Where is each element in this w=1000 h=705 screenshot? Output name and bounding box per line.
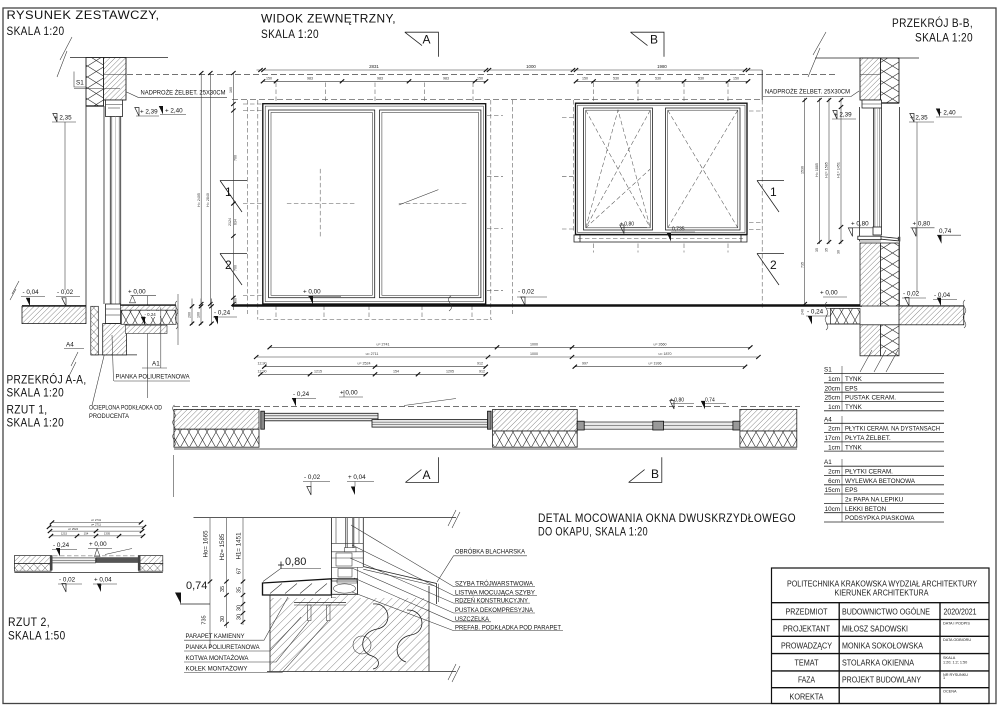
svg-text:1000: 1000 <box>530 342 538 346</box>
svg-text:PRODUCENTA: PRODUCENTA <box>89 413 130 420</box>
svg-text:+ 0,00: + 0,00 <box>340 390 358 397</box>
svg-text:35: 35 <box>237 587 243 593</box>
svg-text:6cm: 6cm <box>828 478 840 485</box>
svg-text:B: B <box>650 33 658 47</box>
svg-text:0,74: 0,74 <box>939 228 952 235</box>
svg-text:SKALA 1:50: SKALA 1:50 <box>8 631 66 643</box>
svg-text:WIDOK ZEWNĘTRZNY,: WIDOK ZEWNĘTRZNY, <box>261 14 396 26</box>
svg-text:2020/2021: 2020/2021 <box>944 608 977 617</box>
svg-text:POLITECHNIKA KRAKOWSKA WYDZIAŁ: POLITECHNIKA KRAKOWSKA WYDZIAŁ ARCHITEKT… <box>787 580 978 589</box>
svg-text:997: 997 <box>582 362 588 366</box>
svg-text:NADPROŻE ŻELBET. 25X30CM: NADPROŻE ŻELBET. 25X30CM <box>141 88 226 97</box>
svg-text:+ 0,80: + 0,80 <box>913 221 931 228</box>
svg-text:PŁYTA ŻELBET.: PŁYTA ŻELBET. <box>845 433 891 442</box>
svg-text:15cm: 15cm <box>825 487 840 494</box>
svg-text:2: 2 <box>225 258 232 272</box>
svg-text:H= 2405: H= 2405 <box>197 193 201 207</box>
svg-text:100: 100 <box>197 312 201 318</box>
svg-text:+ 2,40: + 2,40 <box>938 110 956 117</box>
svg-text:RYSUNEK ZESTAWCZY,: RYSUNEK ZESTAWCZY, <box>7 10 160 22</box>
svg-text:10cm: 10cm <box>825 506 840 513</box>
svg-text:Ho= 1665: Ho= 1665 <box>203 530 210 558</box>
svg-text:A1: A1 <box>152 361 160 368</box>
svg-text:30: 30 <box>237 614 243 620</box>
svg-text:+ 2,40: + 2,40 <box>165 108 183 115</box>
svg-text:150: 150 <box>266 77 272 81</box>
svg-text:2831: 2831 <box>369 64 379 69</box>
svg-text:H= 2840: H= 2840 <box>206 193 210 207</box>
svg-text:u= 2524: u= 2524 <box>68 527 79 531</box>
svg-text:EPS: EPS <box>845 487 858 494</box>
svg-text:+ 0,04: + 0,04 <box>348 474 366 481</box>
svg-text:SKALA 1:20: SKALA 1:20 <box>915 33 973 45</box>
svg-text:35: 35 <box>220 586 226 592</box>
svg-text:- 0,02: - 0,02 <box>304 474 321 481</box>
svg-text:1980: 1980 <box>657 64 667 69</box>
svg-text:1000: 1000 <box>526 64 536 69</box>
svg-text:PŁYTKI CERAM. NA DYSTANSACH: PŁYTKI CERAM. NA DYSTANSACH <box>845 426 940 433</box>
svg-text:1:20; 1:2; 1:50: 1:20; 1:2; 1:50 <box>943 661 967 665</box>
svg-text:PŁYTKI CERAM.: PŁYTKI CERAM. <box>845 469 893 476</box>
svg-text:530: 530 <box>613 77 619 81</box>
svg-text:+ 0,80: + 0,80 <box>851 221 869 228</box>
svg-text:- 0,04: - 0,04 <box>934 292 951 299</box>
svg-text:1305: 1305 <box>104 532 111 536</box>
svg-text:912: 912 <box>477 362 483 366</box>
svg-text:MIŁOSZ SADOWSKI: MIŁOSZ SADOWSKI <box>842 625 908 634</box>
svg-text:1: 1 <box>943 676 945 680</box>
svg-text:A4: A4 <box>824 416 832 423</box>
svg-text:30: 30 <box>837 250 841 254</box>
svg-text:DETAL MOCOWANIA OKNA DWUSKRZYD: DETAL MOCOWANIA OKNA DWUSKRZYDŁOWEGO <box>538 513 796 525</box>
svg-text:- 0,02: - 0,02 <box>518 289 535 296</box>
svg-text:2cm: 2cm <box>828 469 840 476</box>
svg-text:- 0,24: - 0,24 <box>293 391 310 398</box>
svg-text:+ 2,39: + 2,39 <box>140 109 158 116</box>
svg-text:2124: 2124 <box>228 218 232 226</box>
svg-text:67: 67 <box>237 568 243 574</box>
svg-text:35: 35 <box>815 248 819 252</box>
svg-text:1cm: 1cm <box>828 376 840 383</box>
svg-text:+ 0,80: + 0,80 <box>620 222 634 228</box>
svg-text:200: 200 <box>188 312 192 318</box>
svg-text:0,74: 0,74 <box>186 580 207 592</box>
svg-text:SKALA 1:20: SKALA 1:20 <box>7 26 65 38</box>
svg-text:2: 2 <box>770 258 777 272</box>
svg-text:u= 2711: u= 2711 <box>91 523 101 527</box>
svg-text:30: 30 <box>220 616 226 622</box>
svg-text:PIANKA POLIURETANOWA: PIANKA POLIURETANOWA <box>116 374 191 381</box>
svg-text:u= 2660: u= 2660 <box>653 342 666 346</box>
svg-text:1536: 1536 <box>801 166 805 174</box>
svg-text:PIANKA POLIURETANOWA: PIANKA POLIURETANOWA <box>186 644 261 651</box>
svg-text:154: 154 <box>84 532 89 536</box>
svg-text:SKALA 1:20: SKALA 1:20 <box>261 29 319 41</box>
svg-text:A: A <box>423 33 431 47</box>
svg-text:KIERUNEK ARCHITEKTURA: KIERUNEK ARCHITEKTURA <box>835 589 930 598</box>
svg-text:A4: A4 <box>66 342 74 349</box>
svg-text:KOTWA MONTAŻOWA: KOTWA MONTAŻOWA <box>186 653 250 662</box>
svg-text:PROJEKT BUDOWLANY: PROJEKT BUDOWLANY <box>842 675 921 684</box>
svg-text:+ 0,00: + 0,00 <box>303 289 321 296</box>
svg-text:NR RYSUNKU: NR RYSUNKU <box>943 673 968 677</box>
svg-text:1cm: 1cm <box>828 404 840 411</box>
svg-text:OCENA: OCENA <box>943 690 957 694</box>
svg-text:983: 983 <box>377 77 383 81</box>
svg-text:+ 0,00: + 0,00 <box>89 541 107 548</box>
svg-text:2x PAPA NA LEPIKU: 2x PAPA NA LEPIKU <box>845 497 904 504</box>
svg-text:SZYBA TRÓJWARSTWOWA: SZYBA TRÓJWARSTWOWA <box>455 578 534 587</box>
svg-text:LEKKI BETON: LEKKI BETON <box>845 506 887 513</box>
svg-text:+ 2,35: + 2,35 <box>910 115 928 122</box>
svg-text:12,90: 12,90 <box>258 369 267 373</box>
svg-text:u= 2524: u= 2524 <box>357 362 370 366</box>
svg-text:912: 912 <box>479 369 485 373</box>
svg-text:TYNK: TYNK <box>845 404 863 411</box>
svg-text:983: 983 <box>443 77 449 81</box>
svg-text:SKALA 1:20: SKALA 1:20 <box>7 418 65 430</box>
svg-text:EPS: EPS <box>845 385 858 392</box>
svg-text:700: 700 <box>234 155 238 161</box>
svg-text:+ 0,04: + 0,04 <box>94 577 112 584</box>
svg-text:B: B <box>651 467 659 481</box>
svg-text:A: A <box>423 468 431 482</box>
svg-text:WYLEWKA BETONOWA: WYLEWKA BETONOWA <box>845 478 916 485</box>
svg-text:35: 35 <box>825 248 829 252</box>
svg-text:FAZA: FAZA <box>798 675 816 684</box>
svg-text:- 0,24: - 0,24 <box>53 542 70 549</box>
svg-text:983: 983 <box>307 77 313 81</box>
svg-text:- 0,04: - 0,04 <box>23 289 40 296</box>
svg-text:634: 634 <box>234 219 238 225</box>
svg-text:TYNK: TYNK <box>845 376 863 383</box>
svg-text:SKALA 1:20: SKALA 1:20 <box>7 388 65 400</box>
svg-text:OCIEPLONA PODKŁADKA OD: OCIEPLONA PODKŁADKA OD <box>89 405 162 412</box>
svg-text:1215: 1215 <box>314 369 322 373</box>
svg-text:17cm: 17cm <box>825 435 840 442</box>
svg-text:SKALA: SKALA <box>943 656 956 660</box>
svg-text:PARAPET KAMIENNY: PARAPET KAMIENNY <box>186 633 246 640</box>
svg-text:Hz= 1585: Hz= 1585 <box>825 162 829 177</box>
svg-text:DATA I PODPIS: DATA I PODPIS <box>943 621 970 625</box>
svg-text:S1: S1 <box>76 80 84 87</box>
svg-text:MONIKA SOKOŁOWSKA: MONIKA SOKOŁOWSKA <box>842 641 923 650</box>
svg-text:PROWADZĄCY: PROWADZĄCY <box>781 641 833 650</box>
svg-text:1: 1 <box>225 185 232 199</box>
svg-text:DO OKAPU, SKALA 1:20: DO OKAPU, SKALA 1:20 <box>538 527 648 539</box>
svg-text:- 0,02: - 0,02 <box>59 577 76 584</box>
svg-text:S1: S1 <box>824 367 832 374</box>
svg-text:- 0,24: - 0,24 <box>145 312 157 317</box>
svg-text:530: 530 <box>698 77 704 81</box>
svg-text:12,90: 12,90 <box>258 362 267 366</box>
svg-text:1215: 1215 <box>61 532 68 536</box>
svg-text:u= 2741: u= 2741 <box>376 342 389 346</box>
svg-text:700: 700 <box>234 265 238 271</box>
svg-text:u= 2741: u= 2741 <box>91 518 102 522</box>
svg-text:1cm: 1cm <box>828 444 840 451</box>
svg-text:H1= 1451: H1= 1451 <box>236 532 243 560</box>
svg-text:160: 160 <box>234 298 238 304</box>
svg-text:- 0,24: - 0,24 <box>214 310 231 317</box>
svg-text:154: 154 <box>393 369 399 373</box>
svg-text:+ 0,00: + 0,00 <box>128 288 146 295</box>
svg-text:2cm: 2cm <box>828 426 840 433</box>
svg-text:1: 1 <box>770 185 777 199</box>
svg-text:25cm: 25cm <box>825 395 840 402</box>
svg-text:KOŁEK MONTAŻOWY: KOŁEK MONTAŻOWY <box>186 663 249 672</box>
svg-text:TYNK: TYNK <box>845 444 863 451</box>
svg-text:A1: A1 <box>824 459 832 466</box>
svg-text:1000: 1000 <box>530 352 538 356</box>
svg-text:H= 1885: H= 1885 <box>815 163 819 177</box>
svg-text:PROJEKTANT: PROJEKTANT <box>783 625 830 634</box>
svg-text:240: 240 <box>801 309 805 315</box>
svg-text:150: 150 <box>582 77 588 81</box>
svg-text:NADPROŻE ŻELBET. 25X30CM: NADPROŻE ŻELBET. 25X30CM <box>765 87 850 96</box>
svg-text:RZUT 2,: RZUT 2, <box>8 617 50 629</box>
svg-text:- 0,02: - 0,02 <box>903 291 920 298</box>
svg-text:30: 30 <box>237 605 243 611</box>
svg-text:+ 0,00: + 0,00 <box>820 290 838 297</box>
svg-text:735: 735 <box>202 615 208 624</box>
svg-text:150: 150 <box>477 77 483 81</box>
svg-text:- 0,02: - 0,02 <box>57 289 74 296</box>
svg-text:KOREKTA: KOREKTA <box>790 692 825 701</box>
svg-text:PODSYPKA PIASKOWA: PODSYPKA PIASKOWA <box>845 515 915 522</box>
svg-text:160: 160 <box>229 87 233 93</box>
svg-text:0,74: 0,74 <box>705 398 715 404</box>
svg-text:- 0,24: - 0,24 <box>807 309 824 316</box>
svg-text:u= 1870: u= 1870 <box>658 352 671 356</box>
svg-text:PRZEKRÓJ B-B,: PRZEKRÓJ B-B, <box>892 17 973 30</box>
svg-text:u= 1936: u= 1936 <box>648 362 661 366</box>
svg-text:PRZEKRÓJ A-A,: PRZEKRÓJ A-A, <box>7 374 87 387</box>
svg-text:RZUT 1,: RZUT 1, <box>7 405 48 417</box>
svg-text:u= 2711: u= 2711 <box>366 352 379 356</box>
svg-text:PRZEDMIOT: PRZEDMIOT <box>786 608 828 617</box>
svg-text:0,80: 0,80 <box>285 556 306 568</box>
svg-text:0,735: 0,735 <box>672 226 685 232</box>
svg-text:1205: 1205 <box>446 369 454 373</box>
svg-text:530: 530 <box>655 77 661 81</box>
svg-text:150: 150 <box>733 77 739 81</box>
svg-text:735: 735 <box>801 262 805 268</box>
svg-text:BUDOWNICTWO OGÓLNE: BUDOWNICTWO OGÓLNE <box>842 607 930 617</box>
svg-text:PUSTAK CERAM.: PUSTAK CERAM. <box>845 395 896 402</box>
svg-text:TEMAT: TEMAT <box>795 659 819 668</box>
svg-text:DATA ODBIORU: DATA ODBIORU <box>943 638 971 642</box>
svg-text:OBRÓBKA BLACHARSKA: OBRÓBKA BLACHARSKA <box>455 546 526 555</box>
svg-text:Hz= 1585: Hz= 1585 <box>219 533 226 560</box>
svg-text:20cm: 20cm <box>825 385 840 392</box>
svg-text:STOLARKA OKIENNA: STOLARKA OKIENNA <box>842 659 914 668</box>
svg-text:H1= 1451: H1= 1451 <box>837 162 841 178</box>
